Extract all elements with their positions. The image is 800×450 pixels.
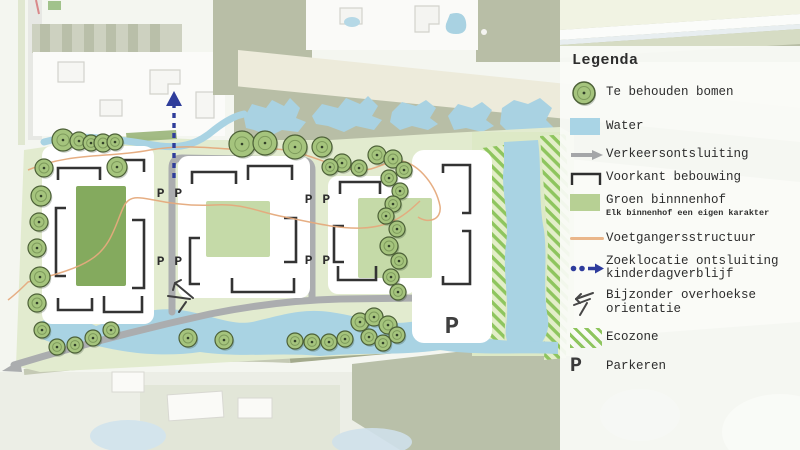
parking-label: P — [445, 314, 459, 341]
parking-label: P P — [157, 186, 183, 201]
parking-icon: P — [570, 357, 582, 377]
site-plan-screenshot: P PP PP PP PP Legenda Te behouden bomen … — [0, 0, 800, 450]
housing-plot-b — [306, 0, 487, 50]
legend-panel: Legenda Te behouden bomen Water Verkeers… — [560, 46, 800, 450]
legend-title: Legenda — [572, 52, 794, 69]
housing-plot-a — [33, 52, 225, 136]
parking-label: P P — [305, 253, 331, 268]
ecozone-swatch — [570, 328, 602, 348]
traffic-arrow-icon — [570, 149, 604, 161]
legend-item-voorkant-bebouwing: Voorkant bebouwing — [570, 171, 794, 186]
courtyard-1 — [76, 186, 126, 286]
dashed-arrow-icon — [570, 262, 606, 275]
street-strip — [18, 0, 25, 145]
legend-item-ecozone: Ecozone — [570, 328, 794, 348]
parking-label: P P — [157, 254, 183, 269]
legend-sublabel: Elk binnenhof een eigen karakter — [606, 209, 790, 218]
corner-orientation-icon — [570, 289, 598, 317]
courtyard-2 — [206, 201, 270, 257]
parking-label: P P — [305, 192, 331, 207]
legend-item-groen-binnenhof: Groen binnnenhof Elk binnenhof een eigen… — [570, 194, 794, 218]
legend-item-voetgangersstructuur: Voetgangersstructuur — [570, 232, 794, 246]
rooftop-band — [32, 24, 182, 53]
building-front-icon — [570, 171, 602, 186]
legend-item-te-behouden-bomen: Te behouden bomen — [570, 79, 794, 107]
legend-item-bijzonder-overhoekse: Bijzonder overhoekse orientatie — [570, 289, 794, 317]
legend-item-parkeren: P Parkeren — [570, 357, 794, 377]
legend-item-water: Water — [570, 118, 794, 135]
legend-label: Groen binnnenhof — [606, 193, 726, 207]
legend-item-verkeersontsluiting: Verkeersontsluiting — [570, 148, 794, 162]
tree-icon — [570, 79, 598, 107]
pedestrian-line-icon — [570, 237, 604, 240]
water-swatch — [570, 118, 600, 135]
courtyard-swatch — [570, 194, 600, 211]
legend-item-zoeklocatie-ontsluiting: Zoeklocatie ontsluiting kinderdagverblij… — [570, 255, 794, 283]
